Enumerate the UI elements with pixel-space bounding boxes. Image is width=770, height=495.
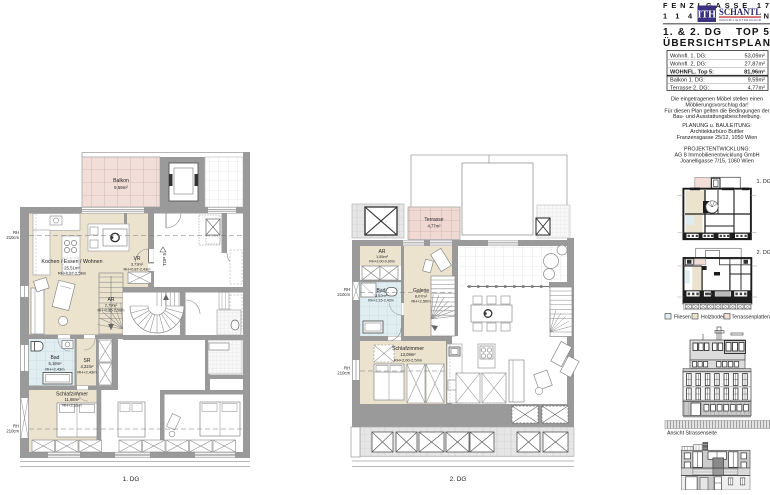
- svg-text:RH+2,43m: RH+2,43m: [45, 367, 65, 372]
- svg-text:Balkon: Balkon: [113, 178, 129, 184]
- svg-text:SCHANTL: SCHANTL: [719, 7, 761, 17]
- svg-text:RH+2,15-2,43m: RH+2,15-2,43m: [368, 299, 393, 303]
- svg-text:210cm: 210cm: [337, 371, 350, 376]
- svg-text:13,09m²: 13,09m²: [400, 352, 416, 357]
- svg-text:Joanelligasse 7/15, 1060 Wien: Joanelligasse 7/15, 1060 Wien: [680, 158, 753, 164]
- svg-text:Holzboden: Holzboden: [701, 314, 726, 320]
- svg-text:WOHNFL. Top 5:: WOHNFL. Top 5:: [670, 69, 714, 75]
- svg-text:27,87m²: 27,87m²: [744, 61, 765, 67]
- svg-text:210cm: 210cm: [337, 292, 350, 297]
- svg-text:Franzensgasse 25/12, 1050 Wien: Franzensgasse 25/12, 1050 Wien: [677, 135, 758, 141]
- svg-text:IMMOBILIENTREUHAND: IMMOBILIENTREUHAND: [719, 18, 761, 22]
- svg-text:RH+0,87-2,43m: RH+0,87-2,43m: [124, 268, 151, 272]
- svg-text:9,59m²: 9,59m²: [748, 77, 766, 83]
- svg-text:1. DG: 1. DG: [123, 476, 140, 483]
- svg-text:TOP 5: TOP 5: [162, 252, 167, 266]
- svg-text:Wohnfl. 2. DG:: Wohnfl. 2. DG:: [670, 61, 707, 67]
- svg-text:1. DG: 1. DG: [757, 179, 770, 185]
- svg-text:Terrasse 2. DG:: Terrasse 2. DG:: [670, 85, 710, 91]
- svg-text:ÜBERSICHTSPLAN: ÜBERSICHTSPLAN: [663, 36, 770, 49]
- svg-text:Bau- und Ausstattungsbeschreib: Bau- und Ausstattungsbeschreibung.: [673, 114, 761, 120]
- svg-text:2,79m²: 2,79m²: [105, 303, 118, 308]
- svg-text:Terrassenplatten: Terrassenplatten: [732, 314, 770, 320]
- svg-text:4,77m²: 4,77m²: [427, 224, 441, 229]
- svg-text:ITH: ITH: [698, 10, 717, 21]
- svg-text:Fliesen: Fliesen: [674, 314, 691, 320]
- svg-text:RH+2,00-0,90m: RH+2,00-0,90m: [369, 260, 394, 264]
- svg-text:Balkon 1. DG:: Balkon 1. DG:: [670, 77, 705, 83]
- svg-text:RH+0,85-2,56m: RH+0,85-2,56m: [98, 309, 125, 313]
- svg-text:Wohnfl. 1. DG:: Wohnfl. 1. DG:: [670, 53, 707, 59]
- svg-text:53,09m²: 53,09m²: [744, 53, 765, 59]
- svg-text:Kochen / Essen / Wohnen: Kochen / Essen / Wohnen: [41, 259, 102, 265]
- svg-text:210cm: 210cm: [6, 429, 19, 434]
- svg-text:Terrasse: Terrasse: [424, 217, 443, 223]
- svg-text:RH+2,50m: RH+2,50m: [411, 299, 431, 304]
- svg-text:81,96m²: 81,96m²: [744, 68, 765, 75]
- svg-text:3,73m²: 3,73m²: [131, 262, 144, 267]
- svg-text:2. DG: 2. DG: [450, 476, 467, 483]
- svg-text:Ansicht Strassenseite: Ansicht Strassenseite: [667, 431, 717, 437]
- svg-text:11,68m²: 11,68m²: [64, 397, 80, 402]
- svg-text:TOP 5: TOP 5: [736, 27, 770, 38]
- svg-text:1,55m²: 1,55m²: [376, 254, 389, 259]
- svg-text:RH+2,43m: RH+2,43m: [77, 370, 97, 375]
- svg-text:3,52m²: 3,52m²: [375, 293, 388, 298]
- svg-text:RH+2,55m: RH+2,55m: [62, 403, 82, 408]
- svg-text:RH+2,00-2,50m: RH+2,00-2,50m: [394, 358, 423, 363]
- svg-text:210cm: 210cm: [6, 235, 19, 240]
- svg-text:4,22m²: 4,22m²: [80, 364, 94, 369]
- svg-text:RH+0,87-2,56m: RH+0,87-2,56m: [58, 271, 87, 276]
- svg-text:9,59m²: 9,59m²: [114, 185, 128, 190]
- svg-text:5,19m²: 5,19m²: [48, 361, 62, 366]
- svg-text:2. DG: 2. DG: [757, 250, 770, 256]
- svg-text:1. & 2. DG: 1. & 2. DG: [663, 27, 721, 38]
- svg-text:4,77m²: 4,77m²: [748, 85, 766, 91]
